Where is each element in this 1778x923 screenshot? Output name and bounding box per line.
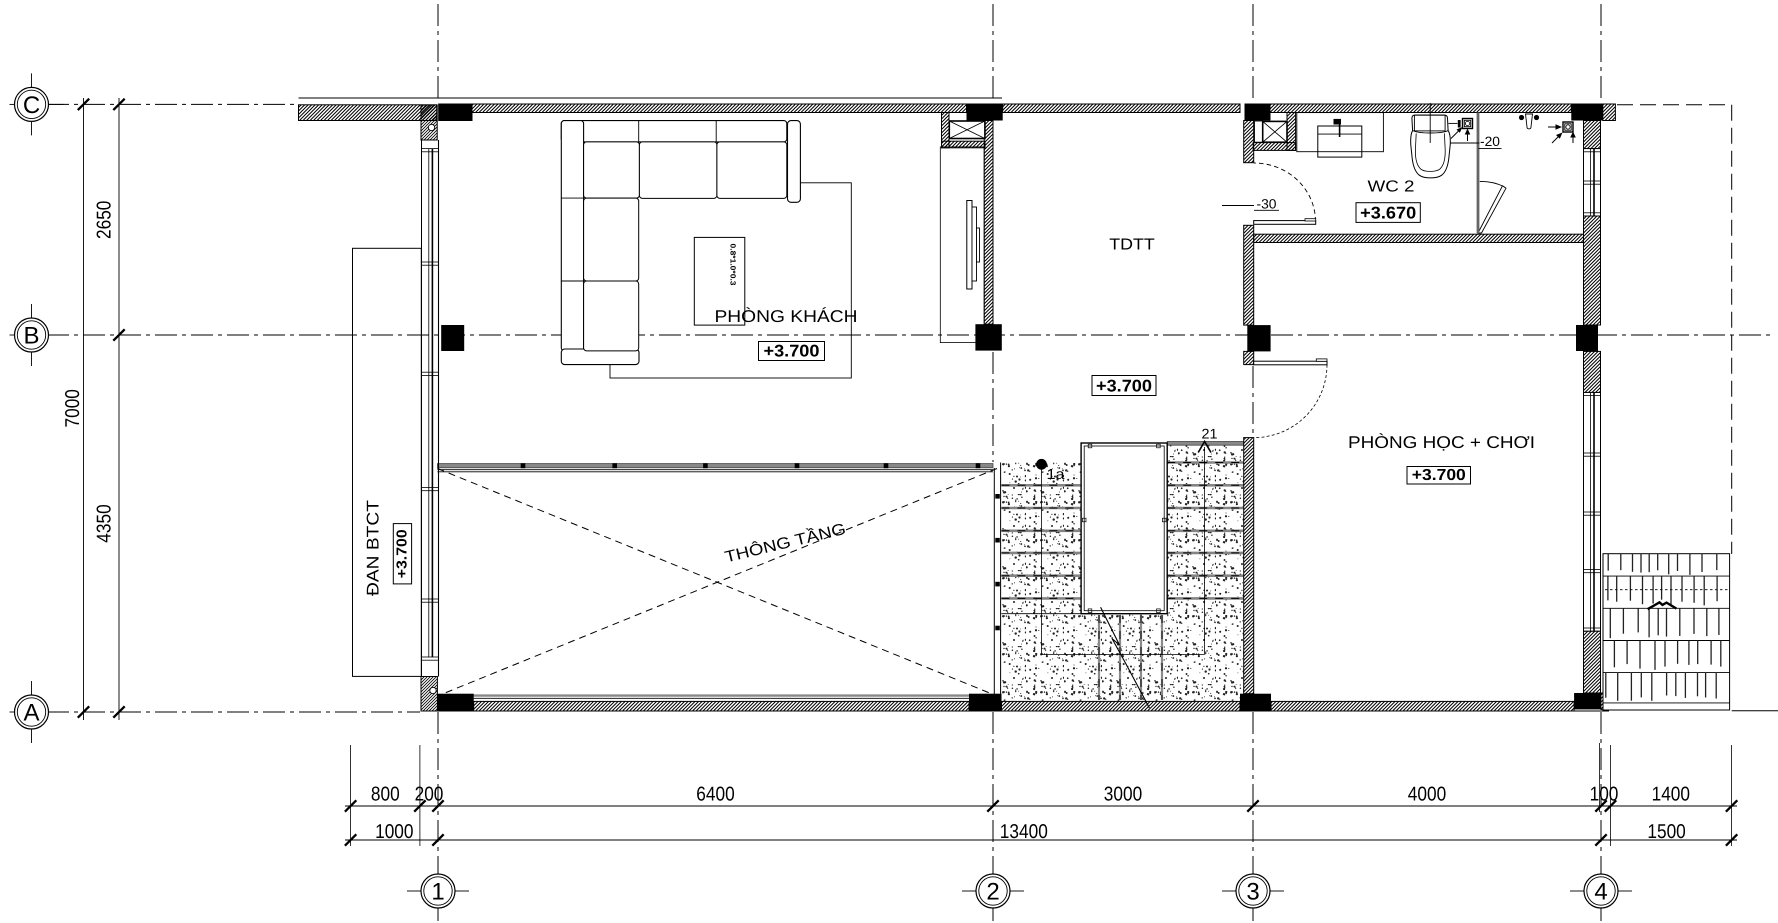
svg-text:1a: 1a [1047,467,1066,483]
svg-text:200: 200 [415,784,444,806]
svg-text:3: 3 [1246,879,1259,906]
svg-text:-30: -30 [1257,196,1277,211]
svg-text:B: B [23,323,39,350]
svg-text:13400: 13400 [1000,821,1048,843]
svg-text:PHÒNG HỌC + CHƠI: PHÒNG HỌC + CHƠI [1348,433,1535,452]
svg-text:4000: 4000 [1408,784,1446,806]
svg-text:2: 2 [986,879,999,906]
svg-text:PHÒNG KHÁCH: PHÒNG KHÁCH [715,307,858,326]
svg-text:21: 21 [1202,426,1218,442]
svg-text:4: 4 [1594,879,1607,906]
svg-text:1: 1 [431,879,444,906]
svg-text:1000: 1000 [375,821,413,843]
svg-text:6400: 6400 [696,784,734,806]
svg-text:A: A [23,700,39,727]
svg-text:7000: 7000 [62,389,84,427]
svg-text:100: 100 [1590,784,1619,806]
svg-text:2650: 2650 [94,201,116,239]
svg-text:+3.700: +3.700 [1096,377,1152,396]
svg-text:1400: 1400 [1652,784,1690,806]
svg-text:WC 2: WC 2 [1368,179,1415,196]
svg-text:0.8*1.0*0.3: 0.8*1.0*0.3 [729,244,738,286]
svg-text:+3.700: +3.700 [395,529,411,578]
svg-text:ĐAN BTCT: ĐAN BTCT [364,500,383,596]
svg-text:4350: 4350 [94,504,116,542]
svg-text:TDTT: TDTT [1109,237,1155,254]
svg-text:C: C [23,92,40,119]
svg-text:+3.700: +3.700 [764,342,820,361]
svg-text:1500: 1500 [1647,821,1685,843]
svg-text:+3.700: +3.700 [1412,467,1466,484]
svg-text:-20: -20 [1480,134,1500,149]
svg-text:+3.670: +3.670 [1360,203,1416,222]
svg-text:3000: 3000 [1104,784,1142,806]
svg-text:800: 800 [371,784,400,806]
